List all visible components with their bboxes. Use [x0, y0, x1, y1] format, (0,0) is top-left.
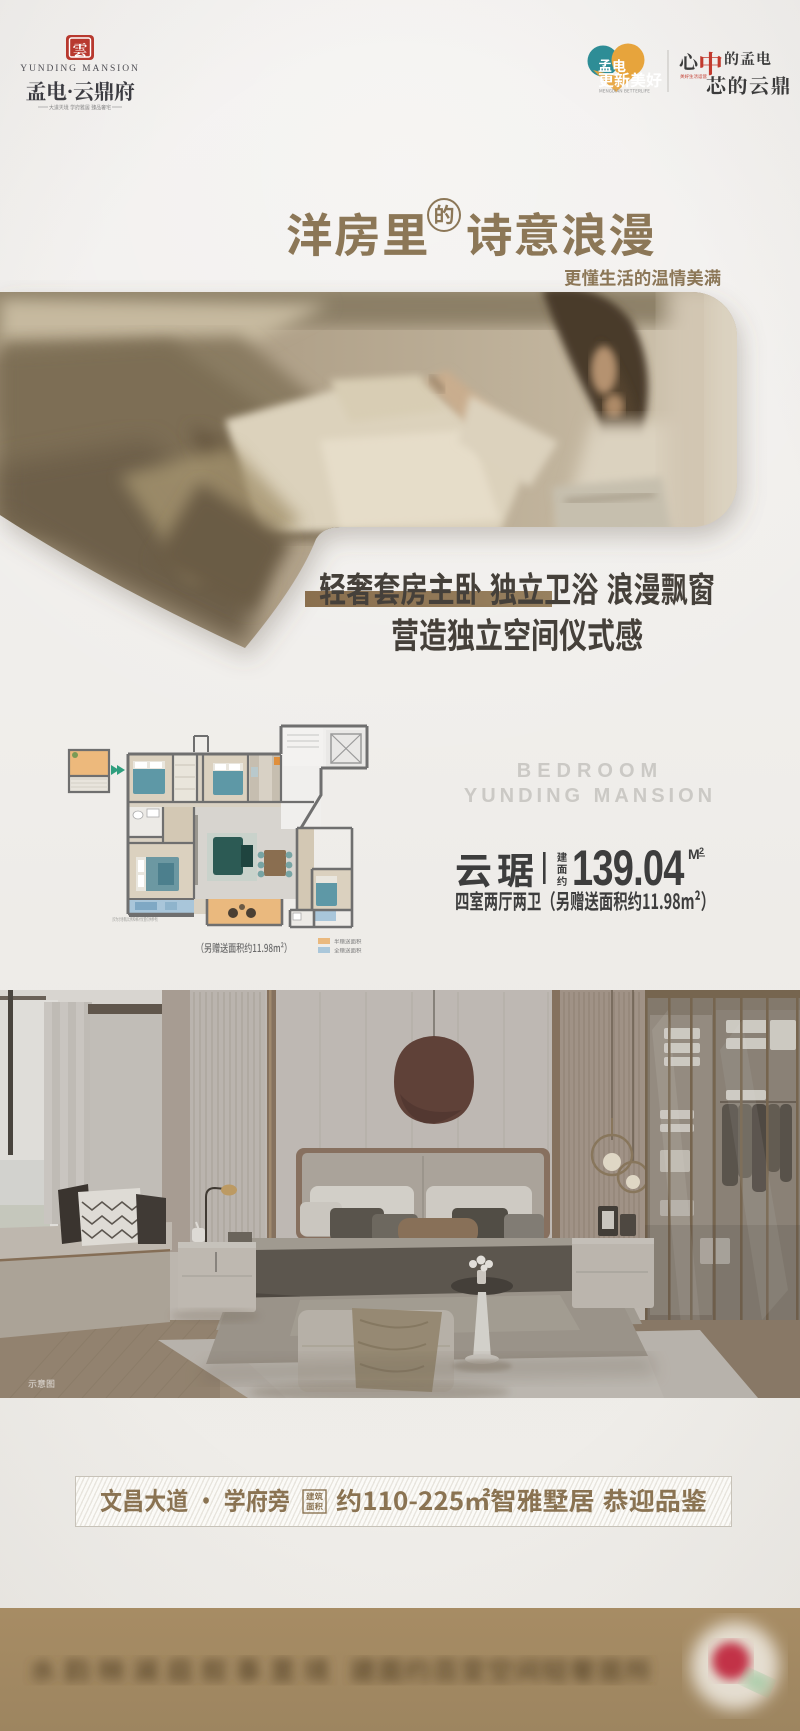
svg-text:2: 2 [699, 846, 704, 856]
svg-text:M: M [688, 846, 700, 862]
